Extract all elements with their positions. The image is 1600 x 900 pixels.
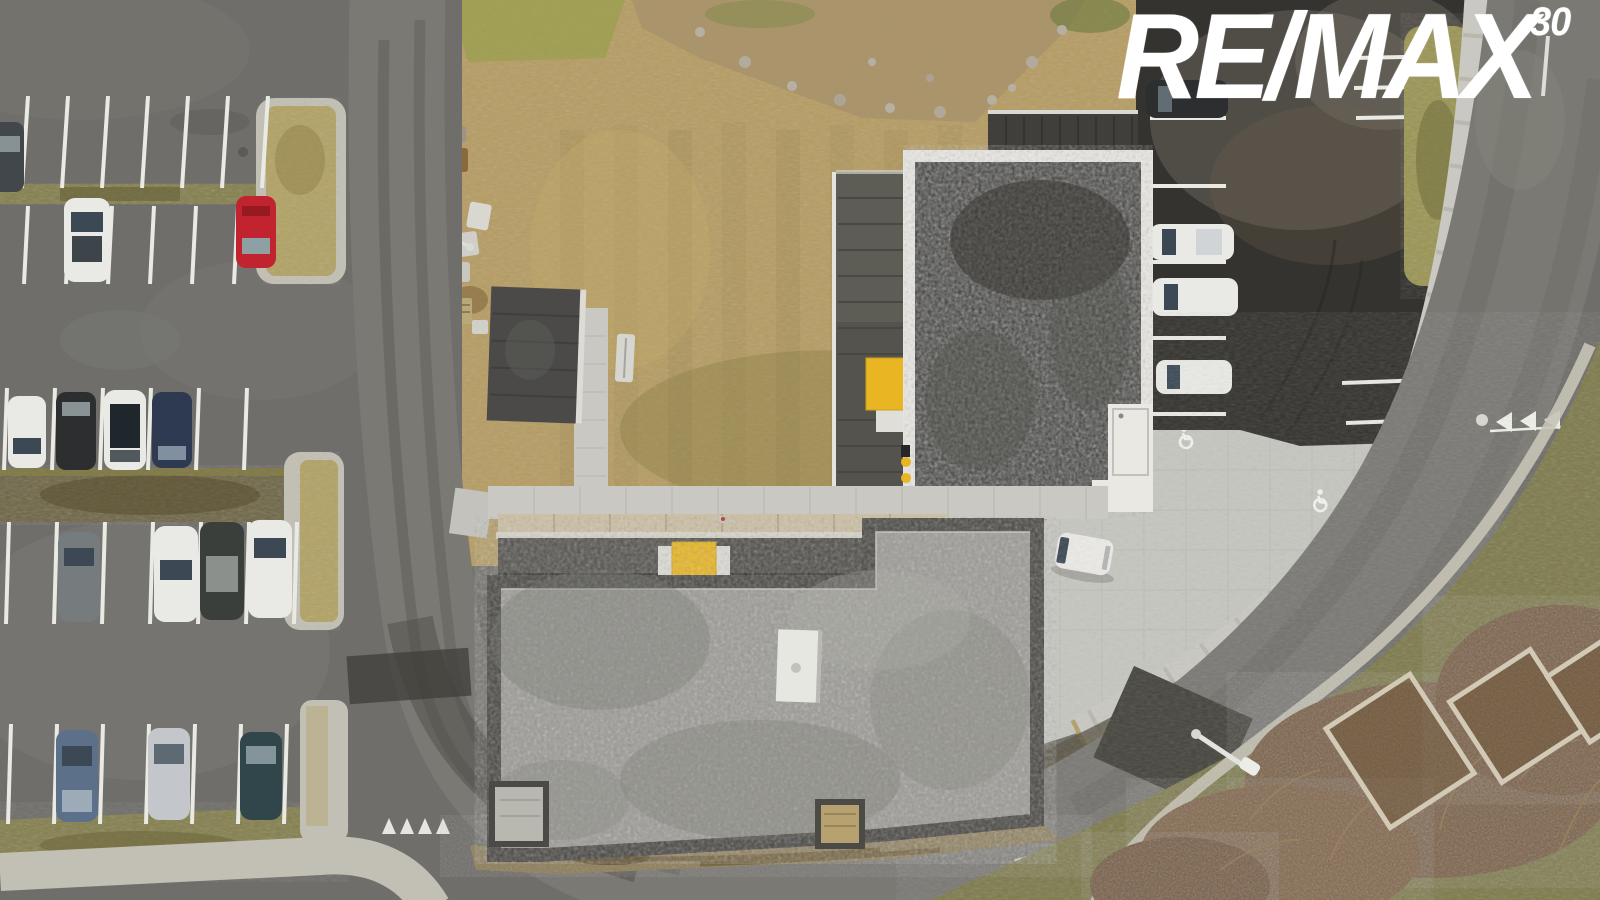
photo-grain-overlay bbox=[0, 0, 1600, 900]
remax-logo-text: RE/MAX bbox=[1116, 0, 1534, 124]
remax-logo-superscript: 30 bbox=[1530, 0, 1570, 44]
aerial-photo: RE/MAX30 bbox=[0, 0, 1600, 900]
remax-watermark: RE/MAX30 bbox=[1116, 0, 1574, 126]
